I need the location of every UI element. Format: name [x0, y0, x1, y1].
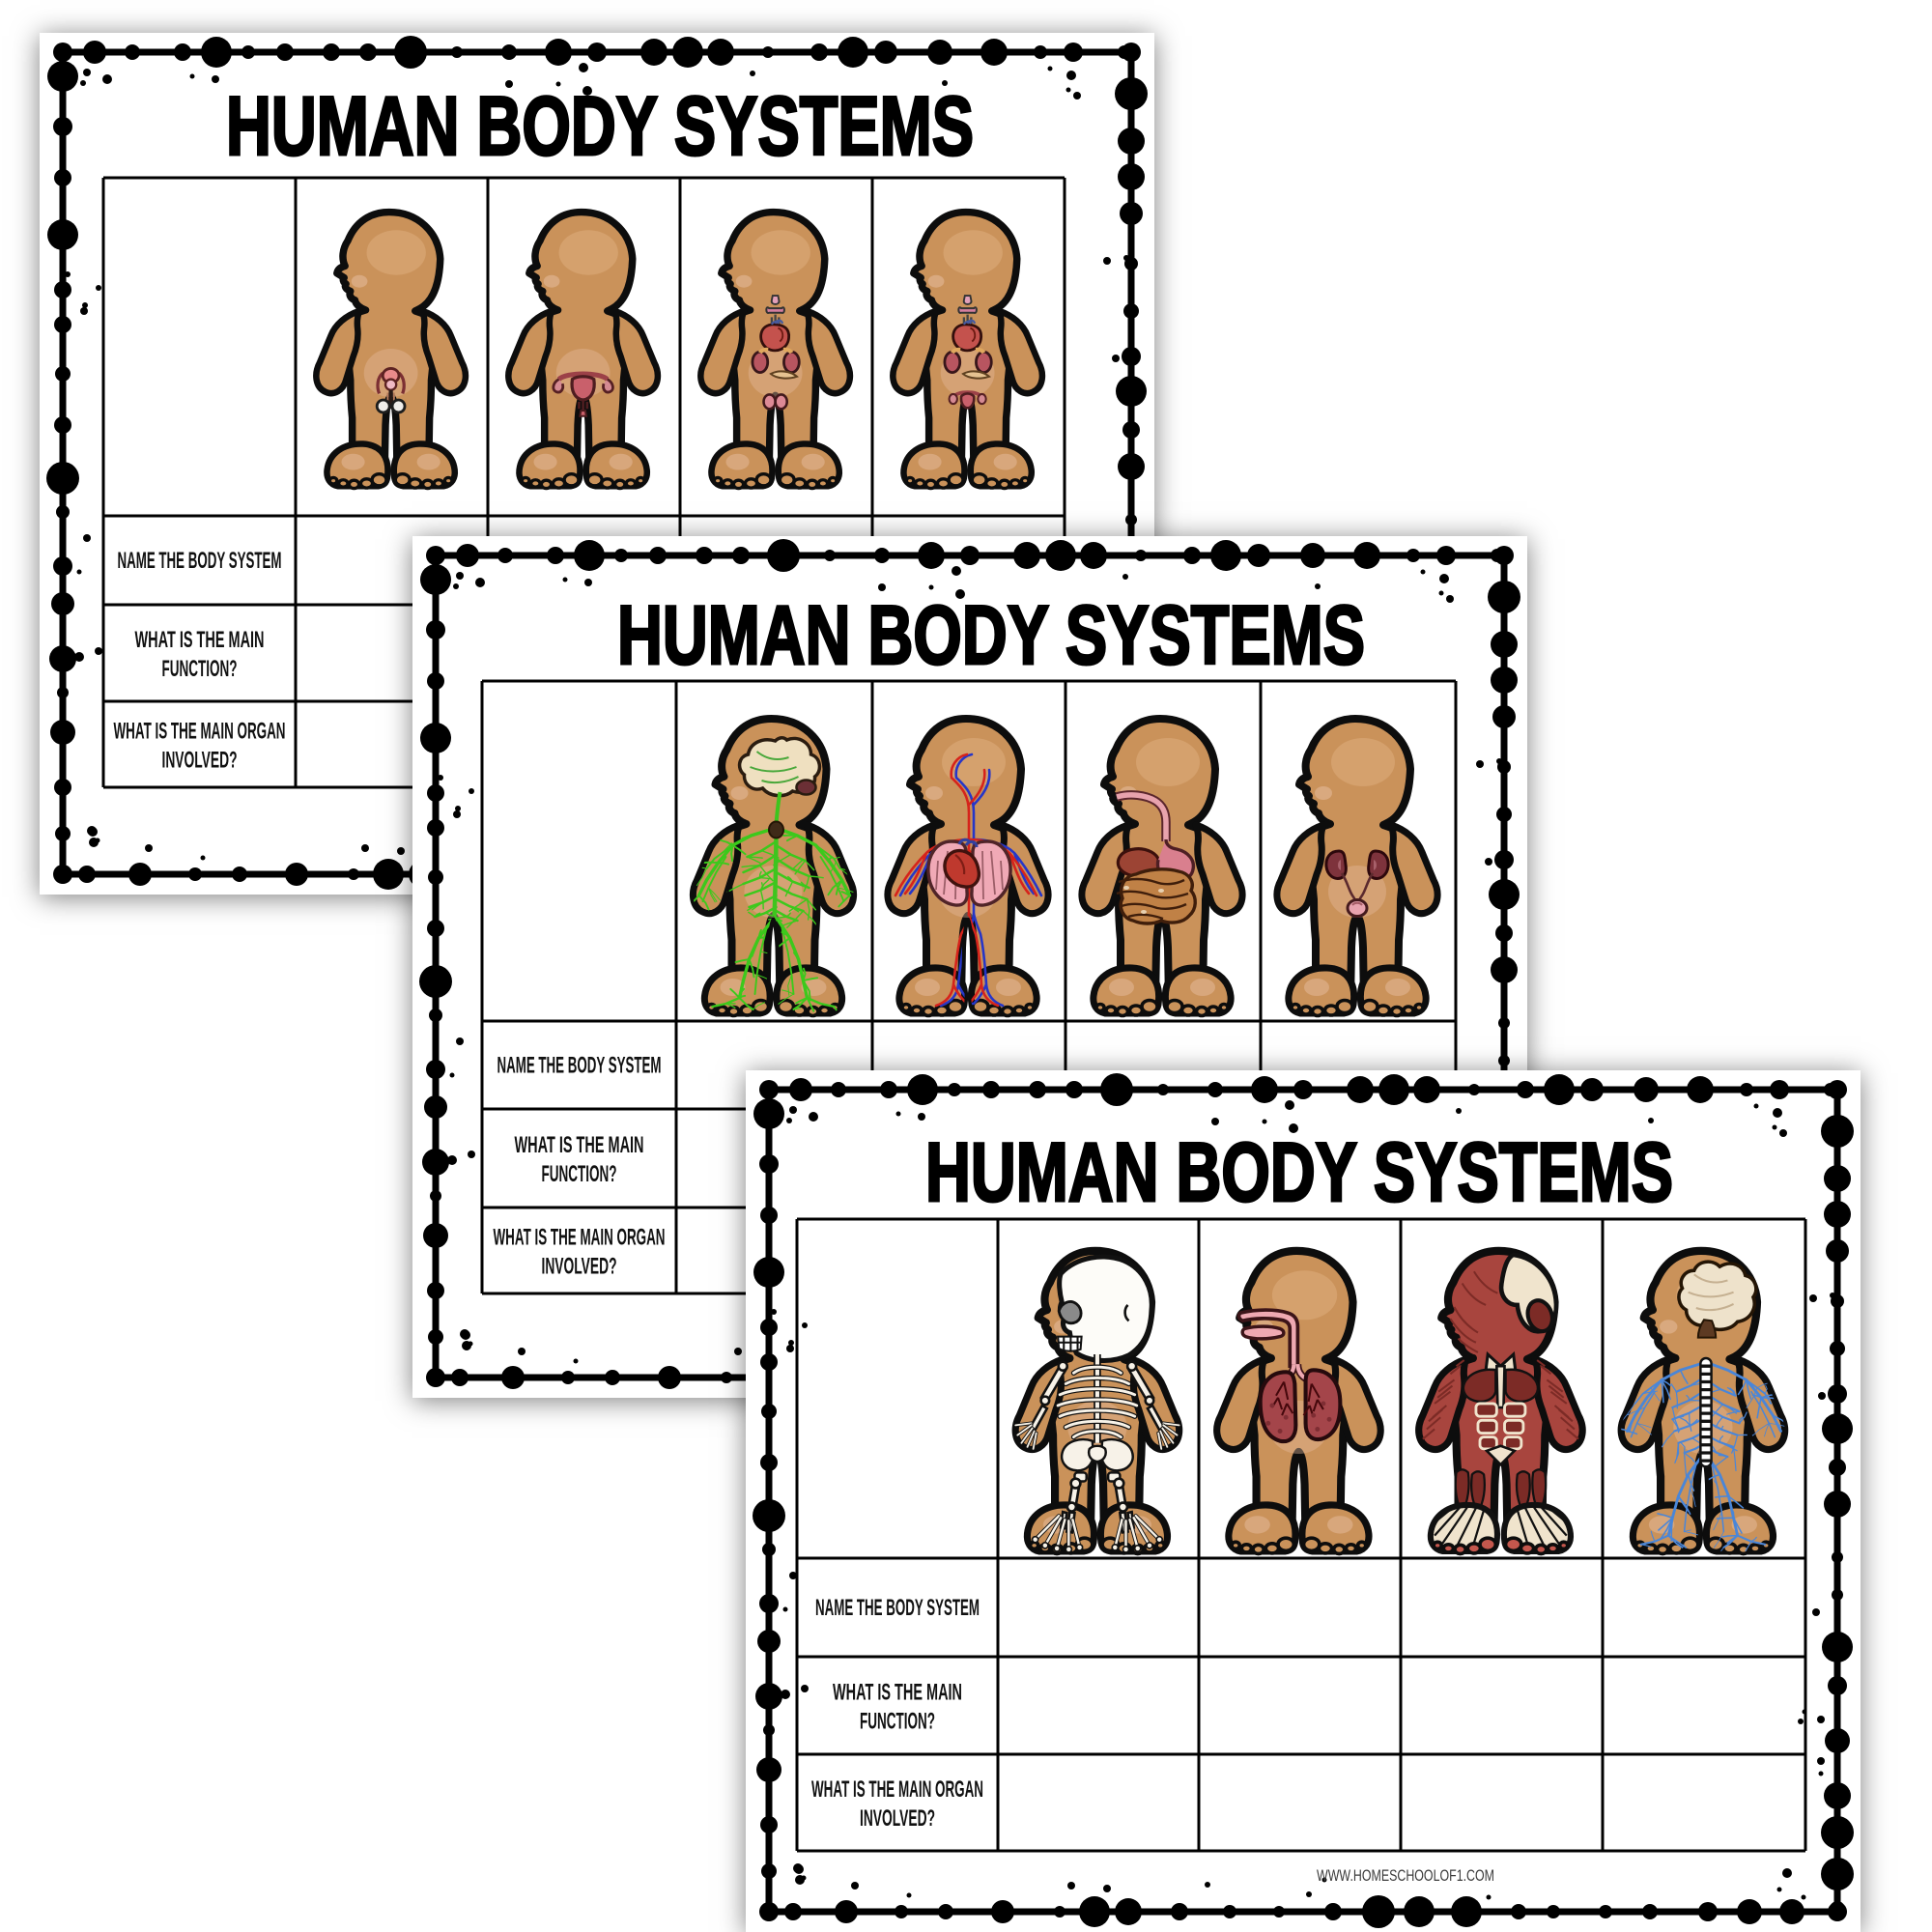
svg-text:HUMAN BODY SYSTEMS: HUMAN BODY SYSTEMS	[226, 80, 974, 173]
svg-text:WHAT IS THE MAIN ORGAN: WHAT IS THE MAIN ORGAN	[114, 719, 286, 745]
svg-text:NAME THE BODY SYSTEM: NAME THE BODY SYSTEM	[815, 1595, 980, 1621]
svg-text:FUNCTION?: FUNCTION?	[542, 1161, 617, 1187]
svg-text:WHAT IS THE MAIN ORGAN: WHAT IS THE MAIN ORGAN	[811, 1776, 983, 1803]
svg-text:INVOLVED?: INVOLVED?	[542, 1254, 617, 1280]
svg-text:FUNCTION?: FUNCTION?	[860, 1709, 935, 1735]
svg-text:WHAT IS THE MAIN ORGAN: WHAT IS THE MAIN ORGAN	[494, 1225, 666, 1251]
svg-text:WHAT IS THE MAIN: WHAT IS THE MAIN	[515, 1132, 644, 1158]
svg-text:NAME THE BODY SYSTEM: NAME THE BODY SYSTEM	[118, 548, 282, 574]
svg-text:INVOLVED?: INVOLVED?	[162, 748, 238, 774]
svg-text:INVOLVED?: INVOLVED?	[860, 1805, 935, 1832]
svg-text:FUNCTION?: FUNCTION?	[162, 656, 238, 682]
svg-text:NAME THE BODY SYSTEM: NAME THE BODY SYSTEM	[497, 1053, 662, 1079]
svg-text:WWW.HOMESCHOOLOF1.COM: WWW.HOMESCHOOLOF1.COM	[1317, 1866, 1494, 1885]
svg-text:HUMAN BODY SYSTEMS: HUMAN BODY SYSTEMS	[925, 1126, 1673, 1219]
svg-text:WHAT IS THE MAIN: WHAT IS THE MAIN	[135, 627, 265, 653]
svg-text:WHAT IS THE MAIN: WHAT IS THE MAIN	[833, 1680, 962, 1706]
svg-text:HUMAN BODY SYSTEMS: HUMAN BODY SYSTEMS	[617, 589, 1365, 682]
